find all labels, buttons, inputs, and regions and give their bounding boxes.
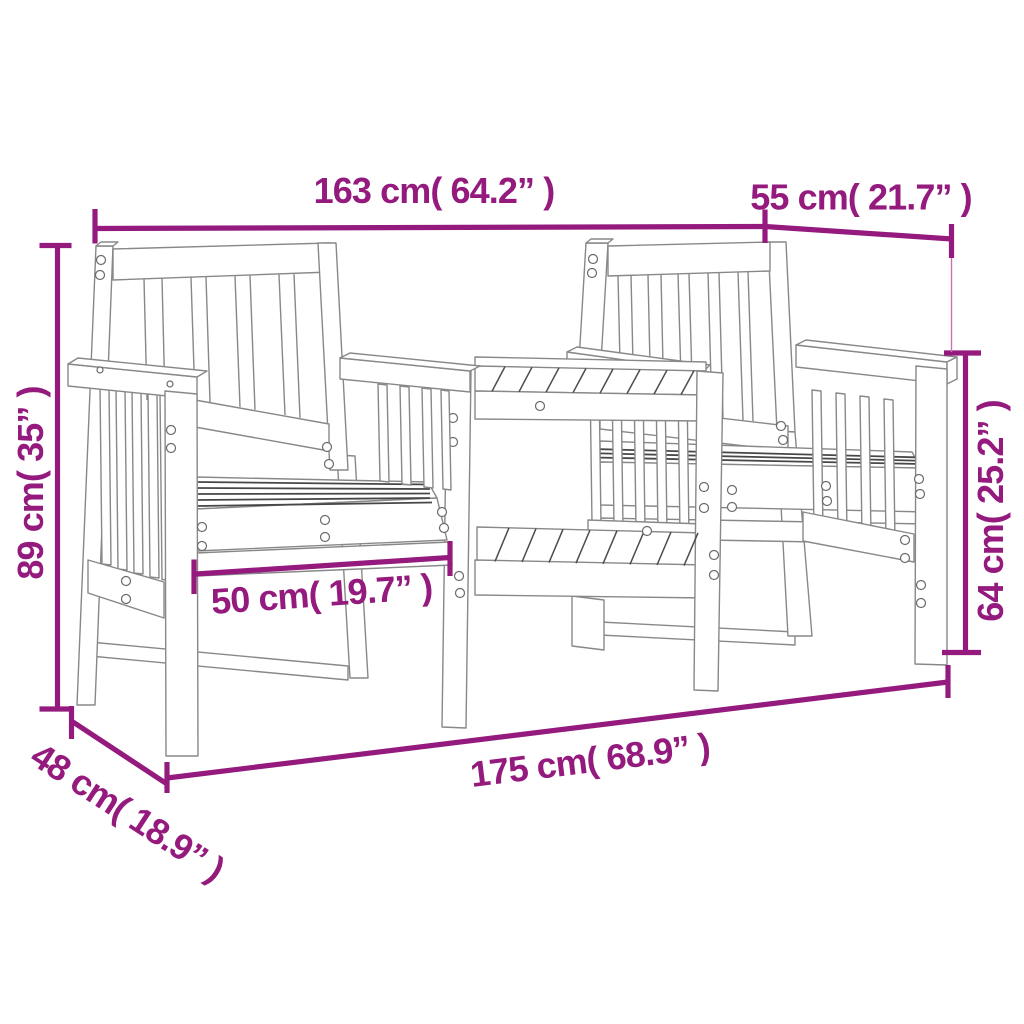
svg-text:163 cm( 64.2” ): 163 cm( 64.2” ): [314, 170, 555, 211]
svg-text:64 cm( 25.2” ): 64 cm( 25.2” ): [970, 400, 1011, 622]
svg-text:55 cm( 21.7” ): 55 cm( 21.7” ): [750, 177, 972, 218]
svg-text:89 cm( 35” ): 89 cm( 35” ): [10, 386, 51, 579]
